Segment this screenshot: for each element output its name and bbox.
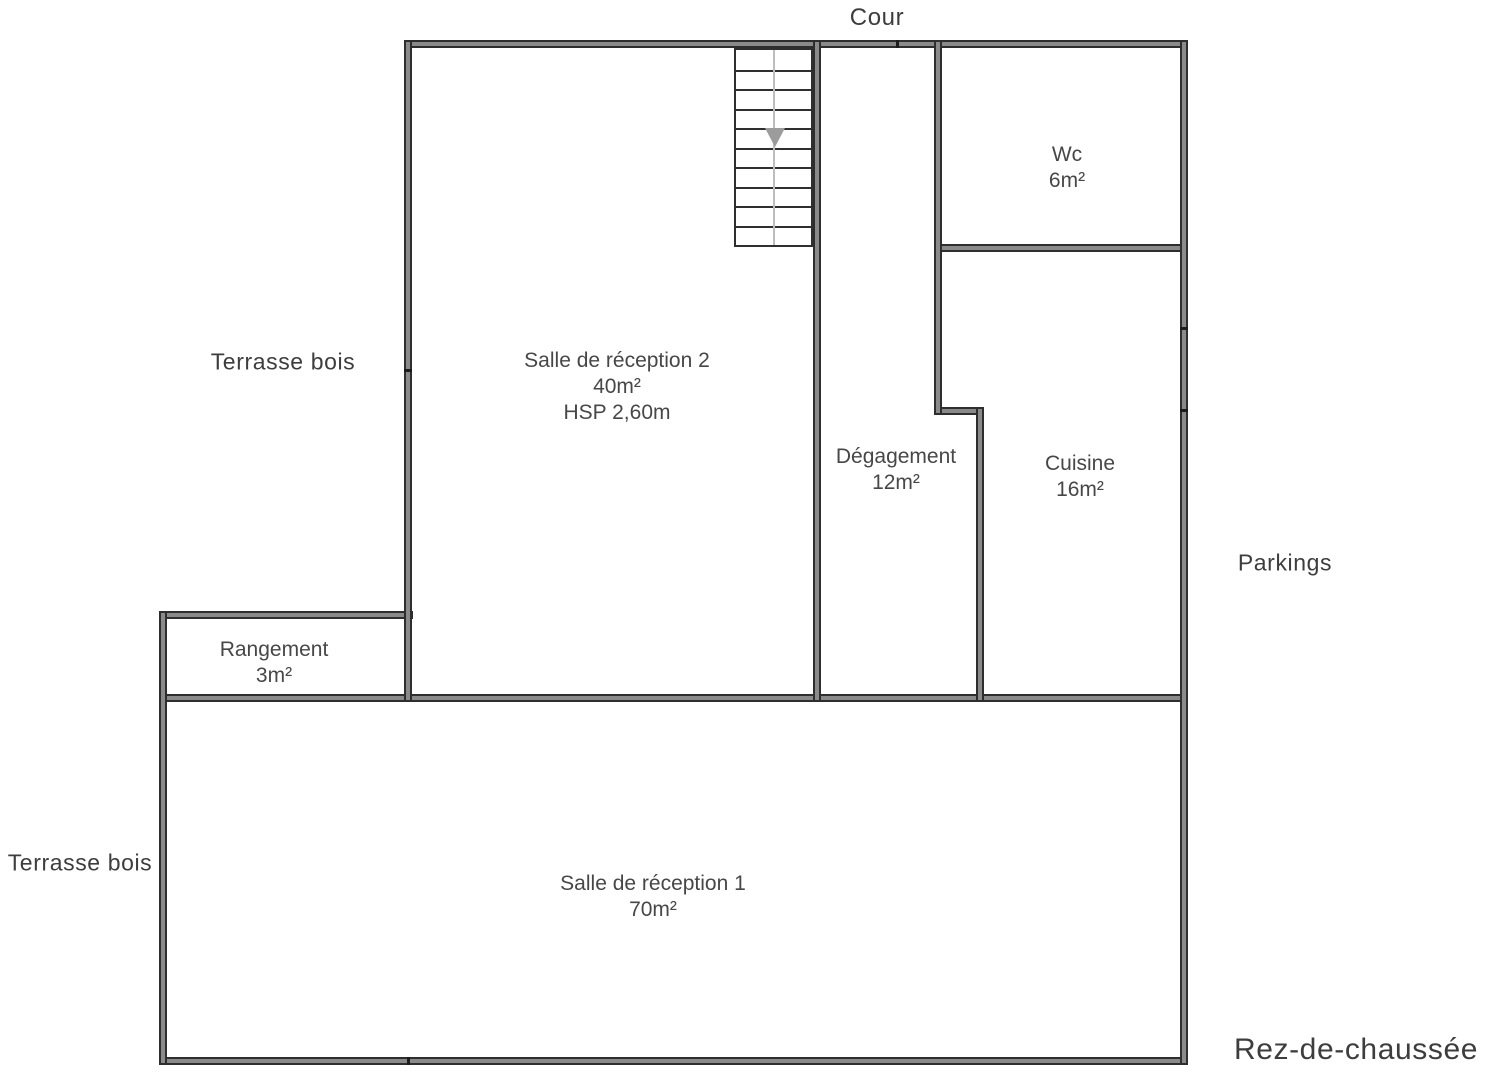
wall-right	[1180, 40, 1188, 1065]
room-label-line: 40m²	[524, 374, 710, 400]
wall-joint-left-wall-joint	[404, 369, 412, 372]
outside-label-parkings: Parkings	[1238, 550, 1332, 577]
wall-wc-bottom	[934, 244, 1188, 252]
wall-rangement-top	[159, 611, 413, 619]
outside-label-cour: Cour	[850, 4, 904, 32]
room-label-line: 16m²	[1045, 477, 1115, 503]
room-label-line: HSP 2,60m	[524, 400, 710, 426]
wall-left-lower	[159, 611, 167, 1065]
wall-wc-left	[934, 40, 942, 415]
stair-down-arrow-icon	[765, 128, 785, 147]
room-label-line: 3m²	[220, 663, 329, 689]
room-label-line: Cuisine	[1045, 451, 1115, 477]
room-label-salle-de-reception-2: Salle de réception 240m²HSP 2,60m	[524, 348, 710, 426]
stair-centerline	[773, 50, 775, 245]
wall-joint-top-wall-joint	[896, 40, 899, 48]
wall-joint-right-wall-joint-2	[1180, 409, 1188, 412]
room-label-line: 12m²	[836, 470, 956, 496]
floor-plan: CourTerrasse boisParkingsTerrasse boisRe…	[0, 0, 1497, 1080]
room-label-cuisine: Cuisine16m²	[1045, 451, 1115, 503]
outside-label-terrasse-bois-lower: Terrasse bois	[8, 850, 153, 877]
wall-stair-right	[813, 40, 821, 702]
floor-title-label: Rez-de-chaussée	[1234, 1033, 1478, 1067]
room-label-salle-de-reception-1: Salle de réception 170m²	[560, 871, 746, 923]
wall-bottom	[159, 1057, 1188, 1065]
room-label-line: Salle de réception 1	[560, 871, 746, 897]
wall-cuisine-left	[976, 407, 984, 702]
wall-joint-bottom-wall-joint	[407, 1057, 410, 1065]
wall-joint-right-wall-joint-1	[1180, 327, 1188, 330]
room-label-degagement: Dégagement12m²	[836, 444, 956, 496]
outside-label-terrasse-bois-upper: Terrasse bois	[211, 349, 356, 376]
room-label-line: Wc	[1049, 142, 1085, 168]
wall-top	[404, 40, 1188, 48]
room-label-line: Dégagement	[836, 444, 956, 470]
room-label-wc: Wc6m²	[1049, 142, 1085, 194]
room-label-line: 70m²	[560, 897, 746, 923]
staircase	[734, 48, 813, 247]
wall-middle	[159, 694, 1188, 702]
room-label-line: Rangement	[220, 637, 329, 663]
room-label-line: 6m²	[1049, 168, 1085, 194]
room-label-line: Salle de réception 2	[524, 348, 710, 374]
room-label-rangement: Rangement3m²	[220, 637, 329, 689]
